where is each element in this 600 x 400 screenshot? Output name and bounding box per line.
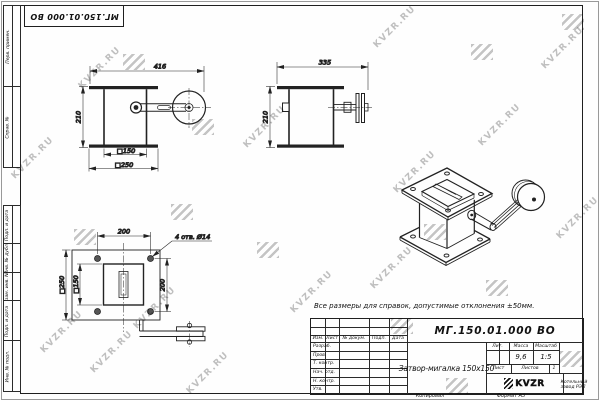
doc-name: Затвор-мигалка 150х150 — [407, 342, 486, 394]
front-dim-width: 416 — [154, 63, 166, 71]
logo-stripes-icon — [504, 378, 513, 389]
technical-note: Все размеры для справок, допустимые откл… — [314, 302, 534, 310]
title-block: Изм. Лист № докум. Подп. Дата Разраб. Пр… — [310, 318, 584, 395]
sheets-value: 1 — [549, 364, 559, 373]
format-label: Формат А3 — [488, 393, 534, 399]
col-izm: Изм. — [311, 335, 325, 342]
row-nkontr: Н. контр. — [311, 377, 341, 386]
doc-designation: МГ.150.01.000 ВО — [407, 319, 583, 342]
drawing-sheet: МГ.150.01.000 ВО Перв. примен. Справ. № … — [0, 0, 600, 400]
row-prov: Пров. — [311, 351, 341, 360]
row-tkontr: Т. контр. — [311, 359, 341, 368]
scale-value: 1:5 — [533, 350, 559, 364]
logo-word: KVZR — [515, 379, 544, 389]
side-view: 335 210 — [262, 59, 373, 148]
company-logo: KVZR — [486, 373, 563, 394]
plan-holes-note: 4 отв. Ø14 — [175, 233, 210, 241]
mass-label: Масса — [509, 342, 533, 350]
plan-dim-right: 200 — [159, 279, 167, 291]
mass-value: 9,6 — [509, 350, 533, 364]
company-name: Котельный завод РЭП — [563, 373, 585, 396]
plan-dim-outer: □250 — [58, 276, 66, 295]
front-view: 416 210 □150 □250 — [75, 63, 212, 172]
row-nachotd: Нач. отд. — [311, 368, 341, 377]
col-doc: № докум. — [339, 335, 369, 342]
row-utv: Утв. — [311, 385, 341, 394]
sheet-label: Лист — [486, 364, 511, 373]
front-dim-height: 210 — [75, 111, 83, 123]
sheets-label: Листов — [511, 364, 549, 373]
front-dim-outer: □250 — [115, 161, 134, 169]
side-dim-width: 335 — [319, 59, 331, 67]
lit-label: Лит. — [486, 342, 509, 350]
col-sign: Подп. — [369, 335, 389, 342]
copied-label: Копировал — [405, 393, 455, 399]
scale-label: Масштаб — [533, 342, 559, 350]
col-date: Дата — [389, 335, 407, 342]
plan-dim-inner: □150 — [72, 275, 80, 294]
row-razrab: Разраб. — [311, 342, 341, 351]
plan-view: 200 4 отв. Ø14 200 □150 □250 — [58, 228, 212, 347]
side-dim-height: 210 — [262, 111, 270, 123]
iso-view — [400, 168, 545, 266]
plan-dim-top: 200 — [118, 228, 130, 236]
col-list: Лист — [325, 335, 339, 342]
front-dim-inner: □150 — [117, 147, 136, 155]
